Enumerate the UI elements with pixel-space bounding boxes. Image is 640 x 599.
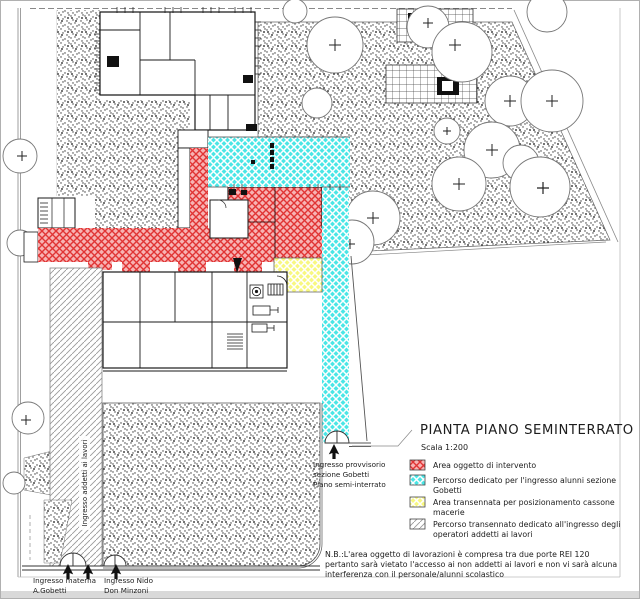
provisional-entrance-label: Ingresso provvisorio xyxy=(313,460,385,469)
tree-icon xyxy=(302,88,332,118)
tree-icon xyxy=(432,157,486,211)
tree-icon xyxy=(3,472,25,494)
legend-swatch-cyan xyxy=(410,475,425,485)
note-line: interferenza con il personale/alunni sco… xyxy=(325,570,504,579)
tree-icon xyxy=(12,402,44,434)
provisional-entrance-label: Piano semi-interrato xyxy=(313,480,386,489)
room-below-cyan xyxy=(210,200,248,238)
legend-swatch-gray xyxy=(410,519,425,529)
legend-label: Gobetti xyxy=(433,486,462,495)
site-plan-svg: Ingresso addetti ai lavori PIANTA PIANO … xyxy=(0,0,640,599)
legend-swatch-yellow xyxy=(410,497,425,507)
tree-icon xyxy=(307,17,363,73)
tree-icon xyxy=(3,139,37,173)
legend-label: Area transennata per posizionamento cass… xyxy=(433,498,615,507)
legend-label: operatori addetti ai lavori xyxy=(433,530,533,539)
nido-entrance-label: Ingresso Nido xyxy=(104,576,153,585)
note-line: pertanto sarà vietato l'accesso ai non a… xyxy=(325,560,617,569)
legend-label: macerie xyxy=(433,508,465,517)
building-lower xyxy=(103,258,287,371)
materna-entrance-label: Ingresso materna xyxy=(33,576,96,585)
bottom-edge-strip xyxy=(0,591,640,599)
legend-label: Percorso transennato dedicato all'ingres… xyxy=(433,520,620,529)
note-line: N.B.:L'area oggetto di lavorazioni è com… xyxy=(325,550,589,559)
floor-plan-sheet: Ingresso addetti ai lavori PIANTA PIANO … xyxy=(0,0,640,599)
legend-label: Area oggetto di intervento xyxy=(433,461,536,470)
workers-entrance-label: Ingresso addetti ai lavori xyxy=(81,440,89,527)
materna-entrance-label: A.Gobetti xyxy=(33,586,67,595)
provisional-entrance-label: sezione Gobetti xyxy=(313,470,369,479)
scale-label: Scala 1:200 xyxy=(421,443,468,452)
page-title: PIANTA PIANO SEMINTERRATO xyxy=(420,423,634,438)
tree-icon xyxy=(432,22,492,82)
tree-icon xyxy=(434,118,460,144)
courtyard-area xyxy=(103,403,320,566)
legend-swatch-red xyxy=(410,460,425,470)
tree-icon xyxy=(510,157,570,217)
tree-icon xyxy=(521,70,583,132)
nido-entrance-label: Don Minzoni xyxy=(104,586,148,595)
legend-label: Percorso dedicato per l'ingresso alunni … xyxy=(433,476,616,485)
tree-icon xyxy=(283,0,307,23)
